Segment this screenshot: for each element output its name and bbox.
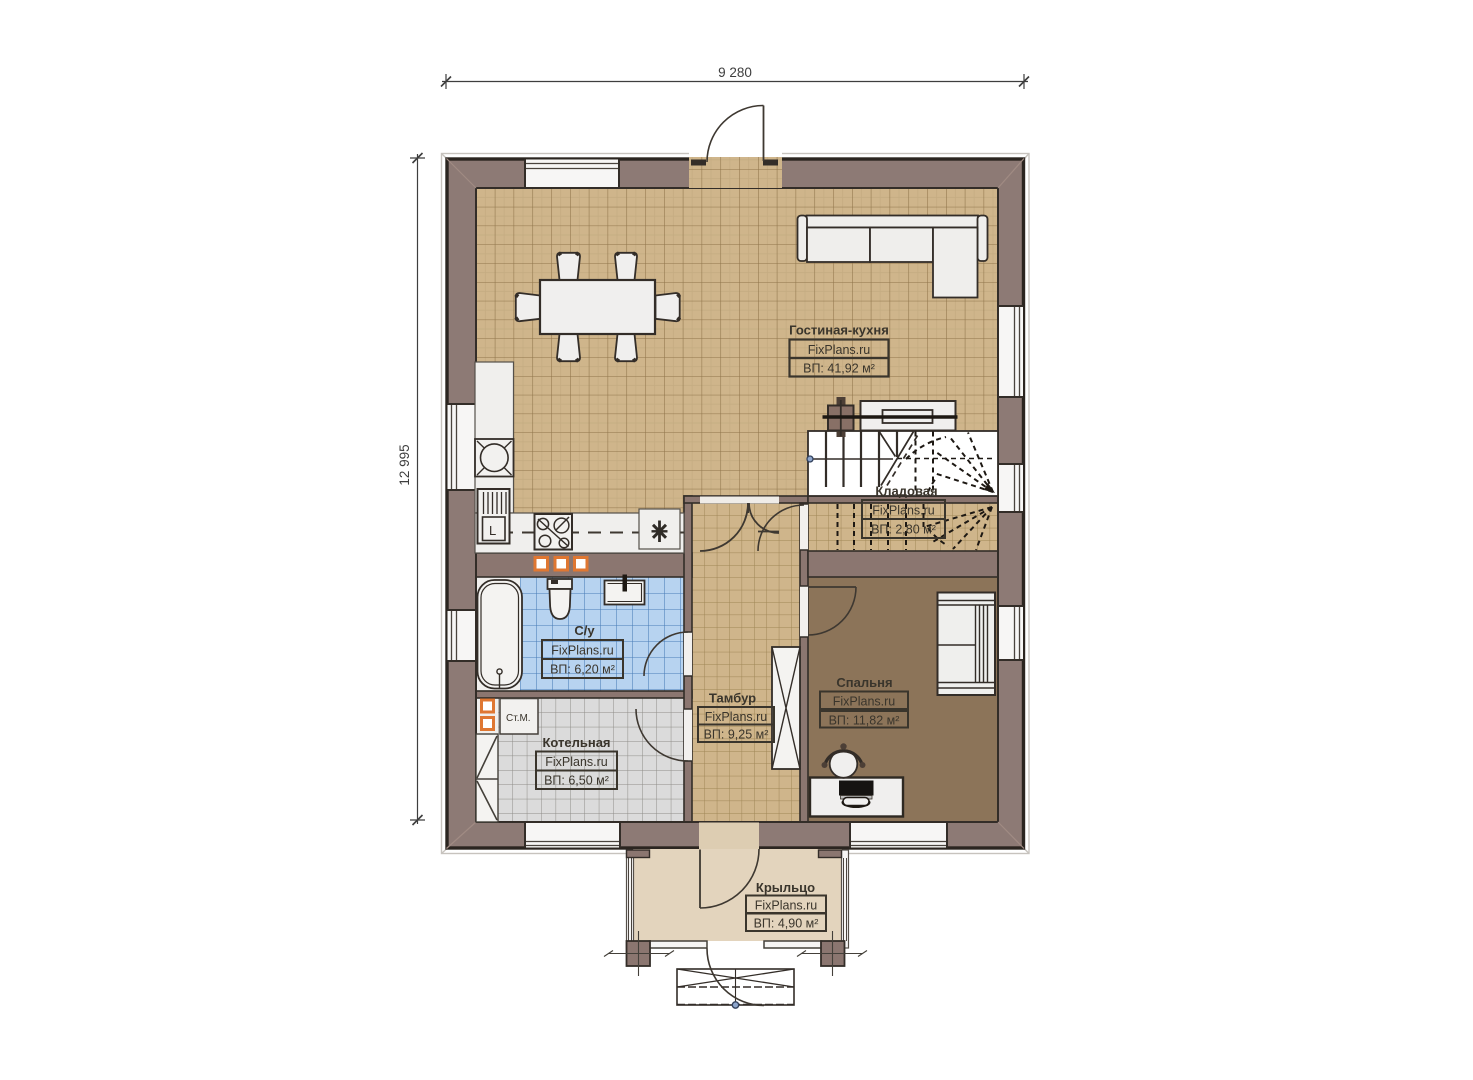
svg-text:ВП: 11,82 м²: ВП: 11,82 м² [829,714,900,728]
svg-text:FixPlans.ru: FixPlans.ru [808,343,871,357]
svg-text:ВП: 6,20 м²: ВП: 6,20 м² [550,663,615,677]
svg-text:Тамбур: Тамбур [709,691,756,706]
svg-text:Гостиная-кухня: Гостиная-кухня [789,323,889,338]
svg-text:L: L [489,523,496,538]
svg-text:FixPlans.ru: FixPlans.ru [705,710,768,724]
svg-text:12 995: 12 995 [397,444,412,485]
svg-text:ВП: 41,92 м²: ВП: 41,92 м² [803,362,875,376]
svg-text:9 280: 9 280 [718,65,752,80]
svg-text:ВП: 4,90 м²: ВП: 4,90 м² [754,917,819,931]
svg-text:ВП: 6,50 м²: ВП: 6,50 м² [544,774,609,788]
svg-text:С/у: С/у [574,623,595,638]
svg-text:FixPlans.ru: FixPlans.ru [755,899,818,913]
svg-text:Котельная: Котельная [542,735,610,750]
svg-text:Крыльцо: Крыльцо [756,880,815,895]
svg-text:Кладовая: Кладовая [875,484,937,499]
svg-text:FixPlans.ru: FixPlans.ru [551,644,614,658]
svg-text:Спальня: Спальня [836,675,892,690]
svg-text:FixPlans.ru: FixPlans.ru [872,504,935,518]
svg-text:FixPlans.ru: FixPlans.ru [545,755,608,769]
svg-text:Ст.М.: Ст.М. [506,713,531,724]
svg-text:FixPlans.ru: FixPlans.ru [833,695,896,709]
svg-text:ВП: 9,25 м²: ВП: 9,25 м² [704,728,769,742]
svg-text:ВП: 2,80 м²: ВП: 2,80 м² [871,523,936,537]
